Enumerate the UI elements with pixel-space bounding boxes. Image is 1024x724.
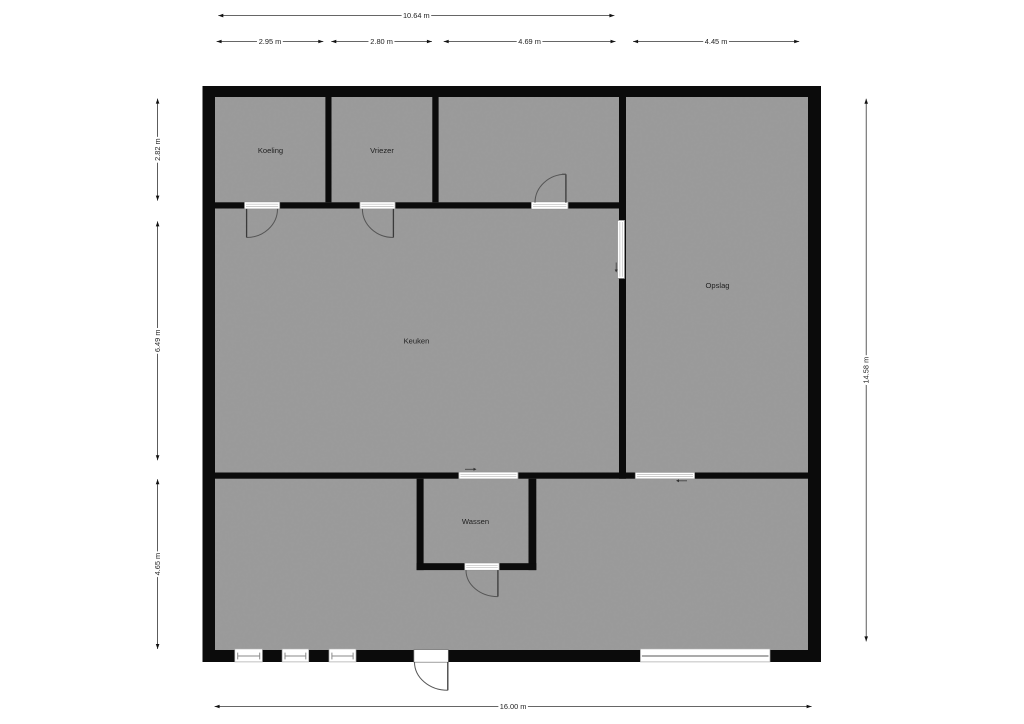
svg-text:14.58 m: 14.58 m xyxy=(862,357,871,384)
svg-text:2.95 m: 2.95 m xyxy=(259,37,282,46)
svg-text:2.80 m: 2.80 m xyxy=(370,37,393,46)
svg-text:16.00 m: 16.00 m xyxy=(500,702,527,711)
svg-text:4.45 m: 4.45 m xyxy=(705,37,728,46)
svg-text:6.49 m: 6.49 m xyxy=(153,329,162,352)
svg-text:4.69 m: 4.69 m xyxy=(518,37,541,46)
svg-text:4.65 m: 4.65 m xyxy=(153,553,162,576)
svg-text:2.82 m: 2.82 m xyxy=(153,138,162,161)
svg-text:Vriezer: Vriezer xyxy=(370,146,394,155)
svg-text:Keuken: Keuken xyxy=(404,337,430,346)
svg-text:Koeling: Koeling xyxy=(258,146,283,155)
svg-text:Opslag: Opslag xyxy=(705,281,729,290)
svg-text:10.64 m: 10.64 m xyxy=(403,11,430,20)
svg-text:Wassen: Wassen xyxy=(462,517,489,526)
